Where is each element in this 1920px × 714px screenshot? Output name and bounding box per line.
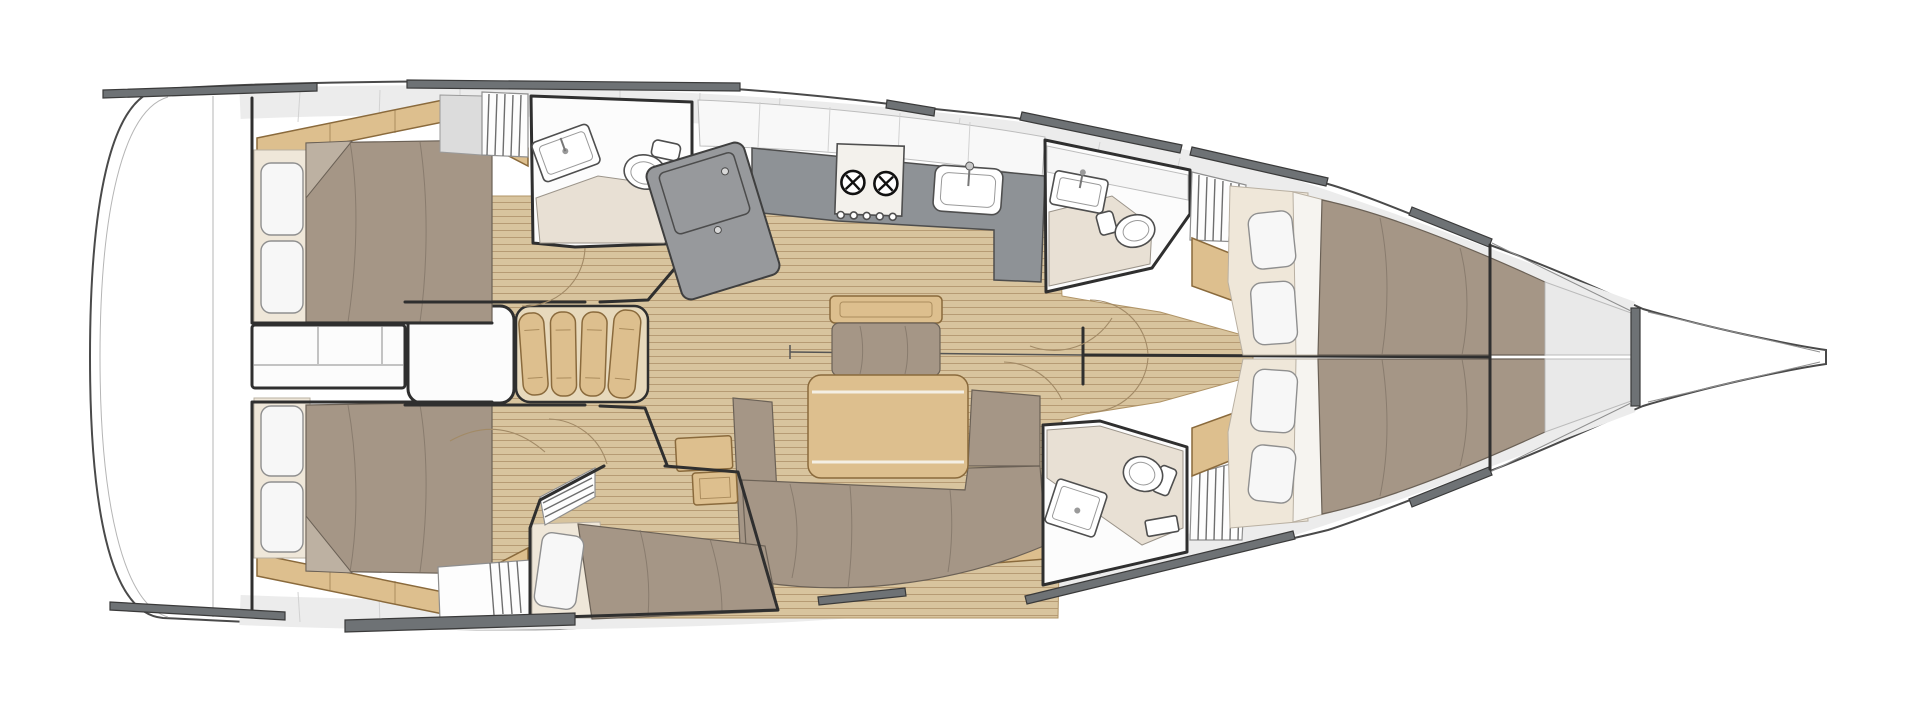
aft-port-duvet [306, 140, 492, 322]
yacht-floor-plan [0, 0, 1920, 714]
aft-stbd-pillow-2 [261, 482, 303, 552]
aft-stbd-duvet [306, 402, 492, 574]
aft-stbd-pillow-1 [261, 406, 303, 476]
galley-stove [835, 144, 905, 221]
stern-storage [252, 325, 405, 388]
salon-bench-seat [830, 296, 942, 376]
yacht-floor-plan-canvas [0, 0, 1920, 714]
companionway-steps [516, 306, 648, 402]
berth-frame [438, 560, 530, 620]
salon-table [808, 375, 968, 478]
settee-arm-right [968, 390, 1040, 466]
aft-port-pillow-1 [261, 163, 303, 235]
galley-sink [932, 160, 1003, 216]
hanging-locker-aft-port [440, 92, 528, 157]
aft-port-pillow-2 [261, 241, 303, 313]
